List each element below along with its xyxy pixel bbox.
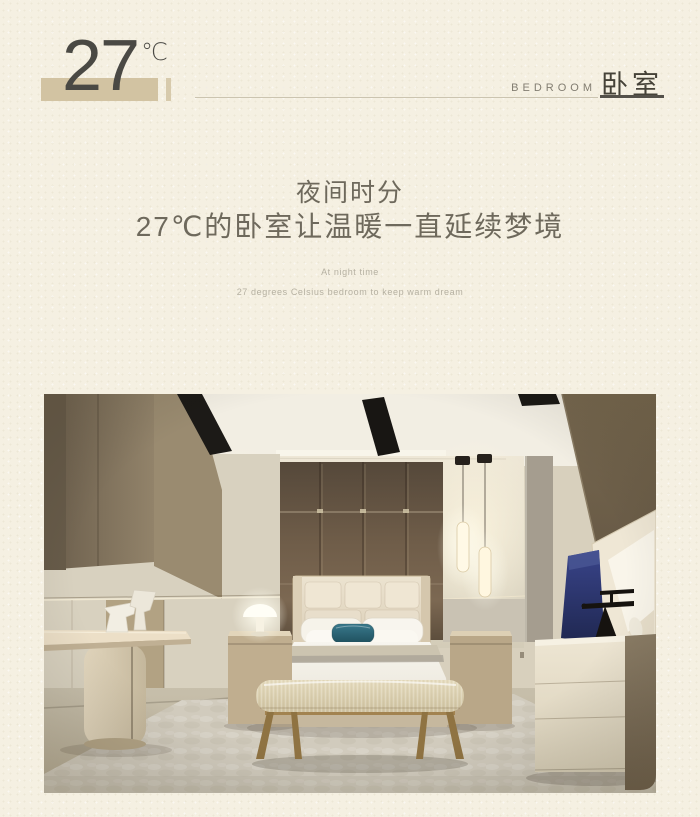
intro-subheading-line2: 27 degrees Celsius bedroom to keep warm …: [0, 287, 700, 297]
bedroom-photo: [44, 394, 656, 793]
temperature-display: 27℃: [62, 30, 168, 102]
category-underline: [600, 95, 664, 98]
header-rule: [195, 97, 598, 98]
bedroom-photo-art: [44, 394, 656, 793]
temperature-value: 27: [62, 26, 138, 106]
intro-heading-line1: 夜间时分: [0, 173, 700, 209]
category-label-en: BEDROOM: [511, 82, 596, 94]
intro-heading-line2: 27℃的卧室让温暖一直延续梦境: [0, 205, 700, 245]
promo-page: { "page": { "bg_color": "#f5f0e2" }, "he…: [0, 0, 700, 817]
photo-vignette: [44, 394, 656, 793]
temperature-unit: ℃: [141, 41, 168, 65]
intro-subheading-line1: At night time: [0, 267, 700, 277]
